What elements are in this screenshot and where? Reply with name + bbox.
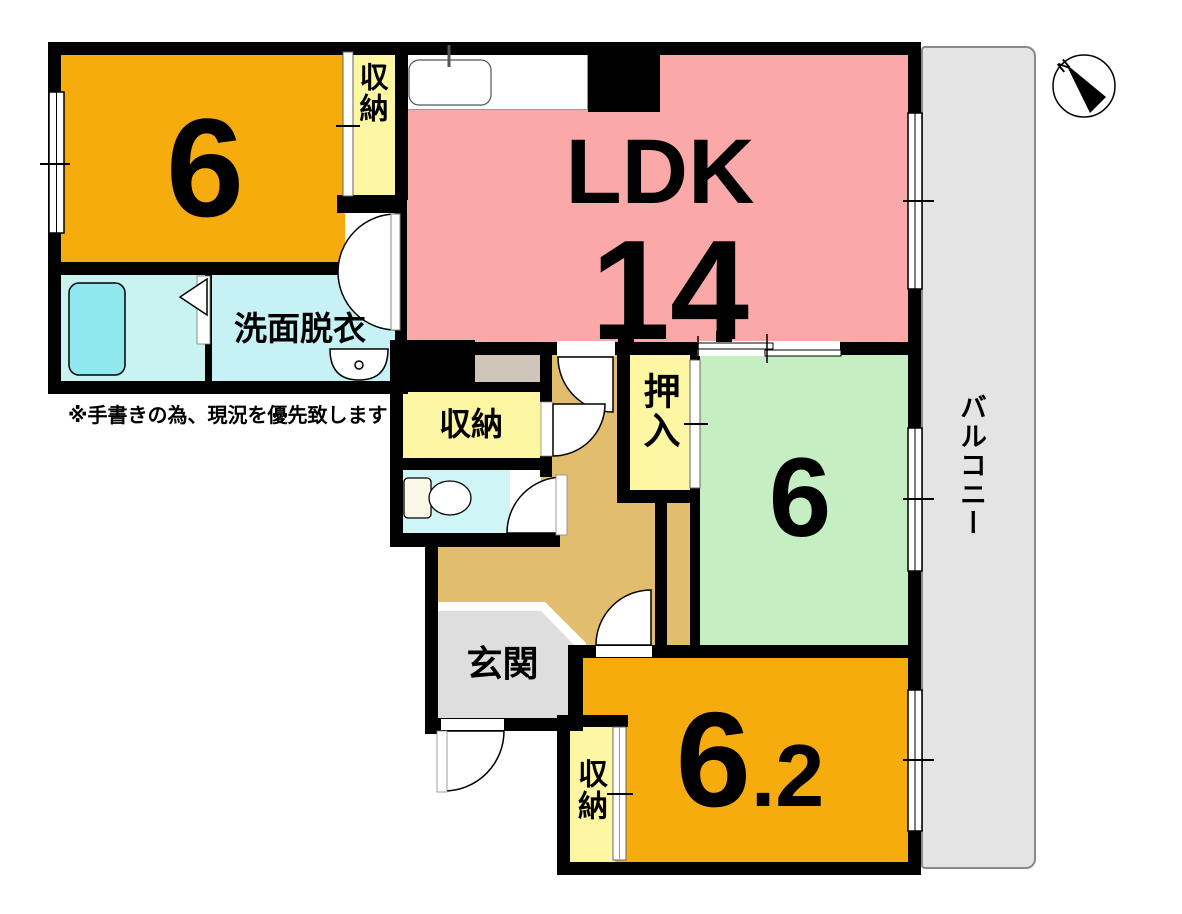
compass-icon: N <box>1048 46 1122 126</box>
bedroom-south-label-main: 6 <box>676 684 751 835</box>
wall-closetmid-east-b <box>540 456 552 477</box>
wall-bath-bottom <box>48 381 408 394</box>
handwritten-note: ※手書きの為、現況を優先致します <box>68 406 387 426</box>
bedroom-east-label: 6 <box>700 442 900 554</box>
wall-bedroomnw-bottom <box>48 262 343 275</box>
bedroom-south-label: 6.2 <box>600 692 900 827</box>
wall-step-bottom <box>475 382 541 392</box>
wall-genkan-bottom <box>425 718 570 731</box>
oshiire-label: 押入 <box>640 372 677 450</box>
wall-toilet-top <box>390 458 540 470</box>
wall-ldk-west-lower <box>395 200 407 345</box>
closet-mid-label: 収納 <box>402 408 540 440</box>
hallway-niche <box>667 503 692 645</box>
hallway-upper <box>541 355 617 546</box>
hallway-mid <box>617 503 655 546</box>
washroom-label: 洗面脱衣 <box>210 312 390 345</box>
room-bath <box>58 272 208 384</box>
room-toilet <box>402 467 510 535</box>
genkan-label: 玄関 <box>440 646 565 682</box>
wall-bedroom-south-top <box>568 645 921 658</box>
floorplan: バルコニー <box>0 0 1182 914</box>
compass-north-label: N <box>1054 56 1073 76</box>
balcony-label: バルコニー <box>957 393 984 538</box>
wall-closets-west <box>557 718 570 875</box>
wall-oshiire-bottom <box>617 490 700 503</box>
wall-center-block <box>390 340 475 392</box>
wall-hall-west <box>425 547 438 734</box>
bedroom-nw-label: 6 <box>80 98 330 238</box>
wall-top <box>48 42 921 55</box>
wall-bottom <box>557 862 921 875</box>
wall-right <box>908 42 921 875</box>
kitchen-counter <box>400 52 588 110</box>
wall-ldk-west-upper <box>395 42 408 200</box>
wall-toilet-bottom <box>390 533 560 547</box>
ldk-label: LDK <box>480 126 840 218</box>
wall-bedroom-east-west <box>690 342 700 658</box>
ldk-size-label: 14 <box>480 220 860 362</box>
balcony-area: バルコニー <box>921 46 1036 869</box>
bedroom-south-label-decimal: .2 <box>751 726 824 825</box>
wall-left <box>48 42 61 394</box>
closet-nw-label: 収納 <box>356 62 385 124</box>
wall-niche <box>655 503 667 645</box>
